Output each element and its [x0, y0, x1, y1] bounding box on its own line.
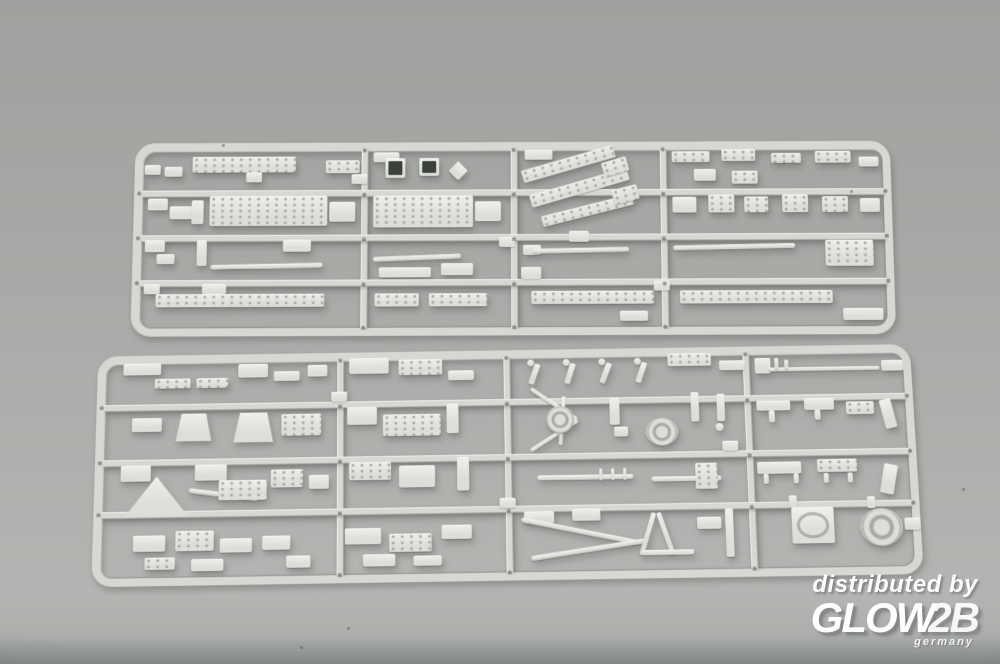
sprue-part [721, 149, 755, 161]
sprue-part [399, 465, 435, 487]
sprues-layer [0, 0, 1000, 664]
ejector-pin-mark [748, 453, 752, 457]
ejector-pin-mark [504, 356, 508, 360]
sprue-part [209, 196, 327, 226]
sprue-part [672, 197, 696, 213]
sprue-part [345, 528, 381, 545]
ejector-pin-mark [362, 283, 366, 287]
sprue-part [697, 517, 722, 529]
sprue-part [521, 267, 541, 279]
sprue-part [815, 151, 851, 163]
sprue-part [860, 198, 880, 212]
dust-speck [222, 144, 225, 147]
sprue-part [756, 400, 790, 410]
sprue-part [155, 378, 191, 388]
sprue-part [274, 371, 300, 381]
ejector-pin-mark [507, 509, 511, 513]
sprue-part [754, 358, 771, 374]
sprue-part [120, 466, 150, 482]
sprue-part [708, 195, 734, 213]
sprue-part [281, 414, 321, 436]
watermark-logo-2b: 2B [928, 594, 978, 641]
sprue-part [191, 559, 224, 572]
ejector-pin-mark [752, 567, 756, 571]
sprue-part [881, 360, 903, 371]
sprue-part [309, 475, 329, 489]
ejector-pin-mark [911, 500, 915, 504]
sprue-part [233, 412, 273, 442]
sprue-part [843, 308, 884, 320]
sprue-part [349, 462, 391, 481]
ejector-pin-mark [663, 281, 667, 285]
sprue-part [623, 468, 626, 480]
ejector-pin-mark [512, 192, 516, 196]
ejector-pin-mark [661, 192, 665, 196]
sprue-part [457, 457, 469, 491]
sprue-part [399, 359, 443, 375]
sprue-part [132, 418, 162, 432]
sprue-part [654, 280, 670, 290]
sprue-part [722, 441, 738, 451]
sprue-part [848, 473, 854, 483]
sprue-part [694, 169, 716, 181]
watermark: distributed by GLOW2B germany [811, 573, 978, 648]
ejector-pin-mark [505, 402, 509, 406]
sprue-part [599, 468, 602, 480]
sprue-part [475, 201, 501, 221]
sprue-part [611, 468, 614, 480]
ejector-pin-mark [512, 282, 516, 286]
sprue-part [680, 290, 833, 304]
sprue-part [846, 401, 875, 414]
sprue-part [175, 413, 211, 441]
sprue-part [308, 365, 328, 377]
sprue-part [429, 293, 487, 306]
ejector-pin-mark [512, 325, 516, 329]
sprue-part [220, 538, 253, 553]
sprue-part [822, 196, 848, 212]
sprue-part [331, 392, 347, 402]
sprue-part [283, 240, 311, 252]
sprue-part [823, 473, 829, 483]
sprue-part [774, 358, 778, 370]
sprue-part [531, 291, 654, 305]
sprue-part [744, 196, 768, 212]
sprue-part [246, 172, 262, 182]
watermark-logo-glow: GLOW [811, 594, 934, 641]
ejector-pin-mark [662, 236, 666, 240]
ejector-pin-mark [508, 570, 512, 574]
sprue-part [192, 157, 296, 173]
sprue-part [374, 293, 418, 306]
sprue-part [363, 554, 395, 567]
sprue-part [672, 151, 710, 162]
sprue-part [144, 557, 175, 570]
sprue-part [825, 240, 874, 266]
sprue-part [572, 508, 600, 520]
sprue-part [817, 459, 858, 473]
ejector-pin-mark [361, 326, 365, 330]
ejector-pin-mark [883, 189, 887, 193]
sprue-part [441, 263, 473, 275]
sprue-part [695, 463, 718, 489]
sprue-part [195, 464, 227, 480]
dust-speck [962, 488, 965, 491]
sprue-part [732, 171, 758, 184]
sprue-part [156, 254, 174, 264]
sprue-part [789, 495, 798, 507]
sprue-part [352, 174, 368, 184]
dust-speck [850, 190, 853, 193]
sprue-part [814, 410, 820, 420]
sprue-part [769, 410, 776, 422]
sprue-part [614, 427, 628, 437]
ejector-pin-mark [338, 359, 342, 363]
sprue-part [389, 533, 431, 552]
sprue-part [155, 294, 324, 308]
sprue-part [349, 358, 389, 374]
ejector-pin-mark [745, 398, 749, 402]
dust-speck [347, 627, 350, 630]
ejector-pin-mark [886, 279, 890, 283]
sprue-part [202, 284, 226, 294]
sprue-part [419, 158, 439, 176]
sprue-part [446, 404, 458, 434]
sprue-part [144, 284, 160, 294]
sprue-part [667, 353, 711, 366]
sprue-bottom [91, 344, 924, 587]
ejector-pin-mark [743, 352, 747, 356]
sprue-part [609, 397, 620, 425]
sprue-part [218, 480, 266, 501]
watermark-logo-country: germany [811, 637, 978, 648]
sprue-part [858, 157, 878, 167]
sprue-part [642, 549, 695, 555]
sprue-part [238, 364, 268, 378]
sprue-part [133, 535, 166, 552]
sprue-part [169, 206, 193, 219]
ejector-pin-mark [338, 511, 342, 515]
ejector-pin-mark [363, 148, 367, 152]
sprue-part [620, 311, 648, 321]
sprue-part [413, 555, 441, 566]
ejector-pin-mark [362, 193, 366, 197]
sprue-part [271, 469, 303, 487]
sprue-part [719, 360, 745, 370]
sprue-part [448, 370, 474, 380]
sprue-part [716, 394, 725, 422]
sprue-part [145, 165, 161, 175]
sprue-part [442, 524, 472, 539]
sprue-part [804, 398, 834, 410]
photo: distributed by GLOW2B germany [0, 0, 1000, 664]
sprue-part [771, 153, 801, 163]
sprue-part [148, 198, 168, 210]
sprue-part [715, 423, 723, 431]
sprue-part [500, 498, 516, 508]
ejector-pin-mark [885, 234, 889, 238]
sprue-part [791, 507, 835, 544]
ejector-pin-mark [905, 394, 909, 398]
ejector-pin-mark [908, 449, 912, 453]
ejector-pin-mark [362, 238, 366, 242]
sprue-part [793, 473, 798, 483]
sprue-part [385, 158, 405, 178]
sprue-part [763, 474, 768, 484]
sprue-part [757, 461, 802, 474]
ejector-pin-mark [512, 237, 516, 241]
ejector-pin-mark [512, 148, 516, 152]
sprue-part [191, 200, 203, 224]
sprue-part [262, 535, 290, 550]
sprue-part [196, 240, 207, 266]
sprue-part [690, 392, 699, 422]
sprue-part [286, 555, 310, 568]
sprue-part [784, 360, 788, 370]
sprue-part [145, 240, 165, 252]
watermark-glow2b-logo: GLOW2B germany [811, 600, 978, 648]
sprue-part [904, 517, 921, 529]
sprue-part [329, 202, 355, 222]
ejector-pin-mark [750, 505, 754, 509]
sprue-part [373, 195, 473, 227]
sprue-part [175, 531, 214, 552]
sprue-part [383, 414, 441, 437]
sprue-part [598, 358, 605, 365]
sprue-part [379, 267, 431, 277]
sprue-part [782, 194, 808, 212]
sprue-part [569, 231, 589, 242]
sprue-part [525, 150, 553, 160]
sprue-part [326, 160, 360, 173]
ejector-pin-mark [663, 325, 667, 329]
sprue-part [867, 496, 876, 508]
sprue-part [347, 407, 377, 425]
sprue-top [130, 141, 896, 337]
sprue-part [123, 363, 161, 375]
ejector-pin-mark [506, 457, 510, 461]
ejector-pin-mark [661, 147, 665, 151]
sprue-part [164, 167, 182, 177]
sprue-part [196, 378, 228, 388]
